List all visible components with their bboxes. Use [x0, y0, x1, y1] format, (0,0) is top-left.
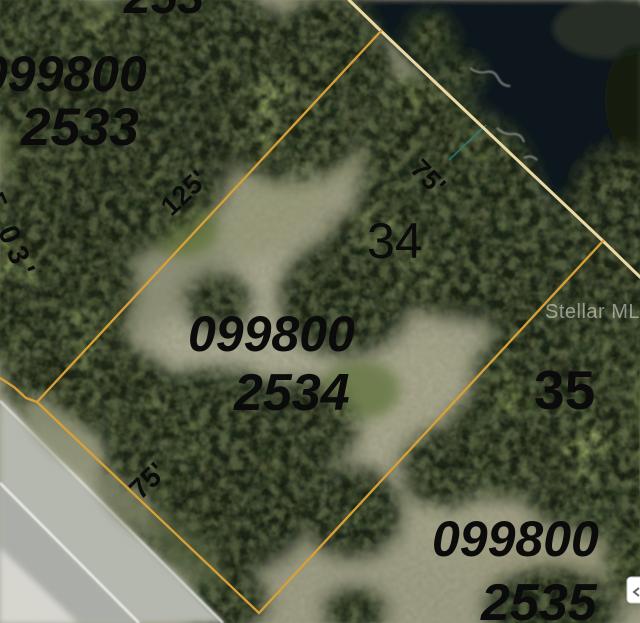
svg-text:Stellar MLS: Stellar MLS — [545, 301, 640, 323]
svg-text:2533: 2533 — [20, 98, 139, 157]
svg-text:253: 253 — [123, 0, 204, 24]
svg-text:2534: 2534 — [233, 364, 350, 422]
svg-text:35: 35 — [534, 359, 595, 421]
svg-text:34: 34 — [367, 213, 423, 269]
svg-text:099800: 099800 — [432, 511, 599, 567]
svg-text:2535: 2535 — [480, 574, 598, 623]
svg-text:099800: 099800 — [0, 46, 147, 102]
svg-text:099800: 099800 — [188, 306, 355, 362]
